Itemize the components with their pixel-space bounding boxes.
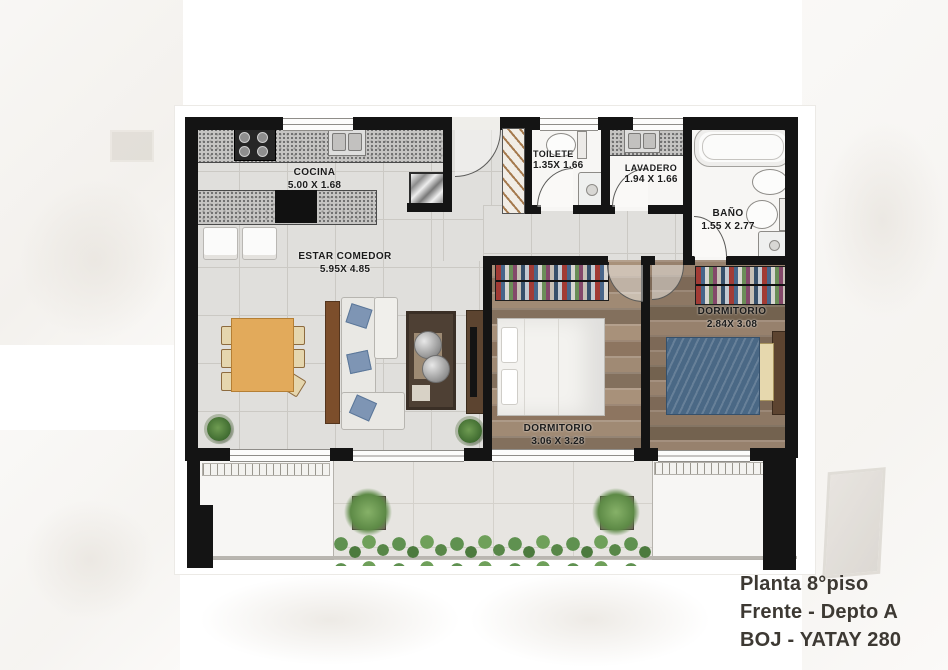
hedge-row xyxy=(333,534,651,566)
room-name: TOILETE xyxy=(533,148,595,160)
wall xyxy=(483,256,492,460)
faded-backdrop-bottom-left xyxy=(0,430,180,670)
laundry-sink-icon xyxy=(624,129,660,153)
wall xyxy=(750,448,796,461)
room-label-lavadero: LAVADERO 1.94 X 1.66 xyxy=(616,162,686,186)
wall xyxy=(187,505,213,568)
room-label-cocina: COCINA 5.00 X 1.68 xyxy=(262,166,367,192)
room-label-bano: BAÑO 1.55 X 2.77 xyxy=(686,207,770,233)
window xyxy=(540,118,598,131)
window xyxy=(633,118,688,131)
wall xyxy=(763,450,796,570)
tv-icon xyxy=(470,327,477,397)
room-dims: 2.84X 3.08 xyxy=(686,318,778,331)
wall xyxy=(683,256,695,265)
bedroom2-closet xyxy=(695,266,790,305)
room-dims: 3.06 X 3.28 xyxy=(512,435,604,448)
room-dims: 1.35X 1.66 xyxy=(533,160,595,172)
wall xyxy=(785,117,798,265)
wall xyxy=(185,448,230,461)
wall xyxy=(688,117,798,130)
faded-tv-render xyxy=(822,467,885,579)
faded-bathroom-render xyxy=(820,120,945,320)
dining-table xyxy=(231,318,294,392)
neighbor-balcony-right xyxy=(652,460,768,560)
faded-backdrop-bottom-2 xyxy=(470,572,710,667)
room-name: DORMITORIO xyxy=(512,422,604,435)
room-dims: 1.94 X 1.66 xyxy=(616,174,686,186)
cooktop-block xyxy=(275,190,317,223)
bed-double-white xyxy=(497,318,605,416)
wall xyxy=(601,128,610,214)
entry-shelving-hatch xyxy=(502,128,525,214)
wall xyxy=(648,205,688,214)
potted-plant-icon xyxy=(458,419,482,443)
wall xyxy=(443,117,452,212)
bed-double-blue xyxy=(666,337,760,415)
plan-title-line3: BOJ - YATAY 280 xyxy=(740,626,901,654)
neighbor-right-hatch xyxy=(654,462,766,475)
room-label-toilete: TOILETE 1.35X 1.66 xyxy=(533,148,595,172)
entry-door-opening xyxy=(452,117,500,130)
wall xyxy=(483,256,608,265)
room-name: ESTAR COMEDOR xyxy=(290,250,400,263)
potted-plant-icon xyxy=(207,417,231,441)
room-name: LAVADERO xyxy=(616,162,686,174)
kitchen-sink-icon xyxy=(328,128,366,156)
floor-plan-page: COCINA 5.00 X 1.68 ESTAR COMEDOR 5.95X 4… xyxy=(0,0,948,670)
bidet-icon xyxy=(752,169,788,195)
window xyxy=(658,450,750,462)
plan-title-line2: Frente - Depto A xyxy=(740,598,901,626)
wall xyxy=(185,117,198,460)
wall xyxy=(185,117,283,130)
stove-icon xyxy=(234,128,276,161)
room-name: COCINA xyxy=(262,166,367,179)
wall xyxy=(187,452,200,512)
faded-picture-frame xyxy=(110,130,154,162)
wall xyxy=(683,117,692,265)
plan-title-line1: Planta 8°piso xyxy=(740,570,901,598)
sideboard xyxy=(325,301,340,424)
room-label-dormitorio-1: DORMITORIO 3.06 X 3.28 xyxy=(512,422,604,448)
room-name: DORMITORIO xyxy=(686,305,778,318)
wall xyxy=(330,448,353,461)
plan-title: Planta 8°piso Frente - Depto A BOJ - YAT… xyxy=(740,570,901,654)
area-rug xyxy=(406,311,456,410)
room-dims: 1.55 X 2.77 xyxy=(686,220,770,233)
window xyxy=(283,118,353,131)
faded-chair-render xyxy=(25,500,155,620)
wall xyxy=(353,117,452,130)
wall xyxy=(785,258,798,458)
room-dims: 5.95X 4.85 xyxy=(290,263,400,276)
room-label-dormitorio-2: DORMITORIO 2.84X 3.08 xyxy=(686,305,778,331)
window xyxy=(353,450,464,462)
room-label-estar: ESTAR COMEDOR 5.95X 4.85 xyxy=(290,250,400,276)
window xyxy=(230,449,330,462)
bedroom1-closet xyxy=(495,262,609,301)
window xyxy=(492,449,634,462)
wall xyxy=(726,256,790,265)
faded-backdrop-bottom-1 xyxy=(200,575,460,665)
bar-stool xyxy=(242,227,277,260)
faded-backdrop-top-left xyxy=(0,0,183,345)
room-name: BAÑO xyxy=(686,207,770,220)
faded-dining-render xyxy=(20,180,170,340)
bathtub-icon xyxy=(694,127,792,167)
neighbor-left-hatch xyxy=(202,463,330,476)
bar-stool xyxy=(203,227,238,260)
sofa-seat-cushion xyxy=(374,297,398,359)
wall xyxy=(407,203,452,212)
room-dims: 5.00 X 1.68 xyxy=(262,179,367,192)
